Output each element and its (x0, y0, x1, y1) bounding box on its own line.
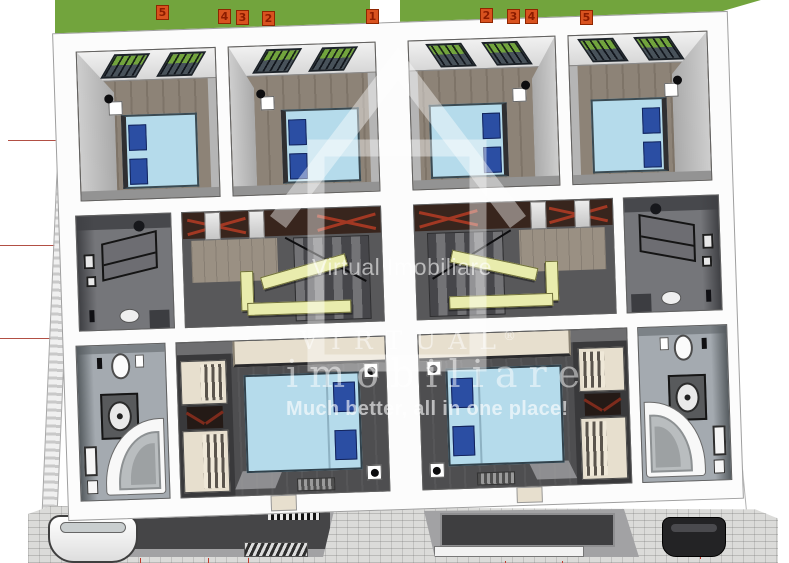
king-bed (244, 371, 363, 473)
radiator (89, 310, 94, 322)
white-car (48, 515, 138, 563)
double-bed (121, 113, 199, 189)
master-bedroom (175, 335, 390, 498)
lot-marker: 2 (262, 11, 275, 26)
stair-hall (413, 198, 617, 321)
wardrobe (580, 417, 628, 480)
wardrobe-slats (200, 364, 223, 401)
ceiling-lamp (133, 220, 144, 231)
towel-rack (87, 480, 98, 494)
stair-railing (449, 293, 553, 309)
bathtub-basin (130, 443, 156, 485)
lot-marker: 3 (236, 10, 249, 25)
side-wall (410, 71, 422, 189)
terrace-canopy (440, 513, 615, 547)
pillow (451, 378, 474, 409)
king-bed (445, 365, 564, 467)
nightstand (367, 465, 382, 480)
chair (119, 309, 139, 324)
bedside-lamp (433, 467, 441, 475)
wardrobe-slats (202, 434, 226, 489)
entrance-terrace-right (424, 509, 639, 557)
towel-rack (714, 459, 725, 473)
toilet (111, 353, 131, 380)
side-wall (368, 73, 380, 191)
entrance-porch (271, 494, 298, 511)
towel-rack (712, 425, 726, 455)
entry-steps (244, 542, 308, 557)
wardrobe-slats (584, 421, 608, 476)
nightstand (512, 88, 526, 102)
master-bedroom (417, 327, 632, 490)
doormat (297, 477, 335, 491)
wardrobe-column (177, 354, 236, 499)
ceiling-joist (574, 200, 591, 229)
bathroom (637, 324, 732, 483)
drain (117, 413, 123, 419)
wardrobe-column (573, 340, 632, 486)
wall-picture (86, 276, 96, 287)
stair-hall (181, 206, 385, 329)
side-wall (569, 66, 581, 184)
bathroom (75, 343, 170, 502)
desk-frame (638, 214, 696, 262)
doorway (631, 294, 652, 313)
double-bed (591, 97, 669, 173)
radiator (706, 290, 711, 302)
toilet (673, 334, 693, 361)
bedroom-outer (567, 31, 712, 186)
entry-step (434, 546, 584, 557)
bathtub-basin (654, 426, 680, 468)
nightstand (260, 96, 274, 110)
nightstand (430, 463, 445, 478)
pillow (482, 113, 501, 140)
wall-fixture (702, 338, 707, 349)
stair-landing (519, 227, 606, 272)
dressing-room (623, 194, 723, 313)
entrance-porch (516, 486, 543, 503)
wardrobe (578, 347, 625, 393)
bedroom-inner (228, 42, 381, 197)
wall-picture (702, 256, 712, 267)
flush-button (135, 354, 144, 367)
wardrobe (182, 430, 230, 493)
lot-marker: 5 (156, 5, 169, 20)
nightstand (664, 83, 678, 97)
pillow (642, 107, 661, 134)
wardrobe-slats (582, 351, 605, 388)
lot-marker: 4 (218, 9, 231, 24)
pillow (129, 158, 148, 185)
doormat (477, 471, 515, 485)
pillow (334, 429, 357, 460)
shelf-niche (187, 406, 224, 429)
double-bed (281, 107, 361, 184)
bathtub-rim (649, 413, 693, 472)
nightstand (363, 363, 378, 378)
nightstand (426, 361, 441, 376)
drain (684, 394, 690, 400)
pillow (333, 381, 356, 412)
lot-marker: 3 (507, 9, 520, 24)
desk-frame (101, 230, 158, 282)
nightstand (108, 101, 122, 115)
rug (235, 470, 282, 490)
pillow (289, 153, 308, 180)
lot-marker: 2 (480, 8, 493, 23)
lot-marker: 5 (580, 10, 593, 25)
lot-marker: 4 (525, 9, 538, 24)
sink (675, 382, 700, 413)
ceiling-joist (204, 212, 221, 241)
towel-rack (84, 446, 98, 476)
double-bed (429, 102, 509, 179)
side-wall (208, 78, 220, 196)
ceiling-joist (530, 201, 547, 230)
building-floorplan (52, 11, 744, 521)
pillow (483, 147, 502, 174)
dressing-room (75, 212, 175, 331)
wall-fixture (97, 358, 102, 369)
bedside-lamp (429, 365, 437, 373)
floorplan-render: 5 4 3 2 1 2 3 4 5 (0, 0, 789, 563)
lot-marker: 1 (366, 9, 379, 24)
chair (661, 291, 681, 306)
sink (107, 401, 132, 432)
wall-picture (702, 234, 713, 249)
flush-button (660, 337, 669, 350)
bathtub-rim (117, 431, 161, 490)
pillow (452, 426, 475, 457)
doorway (149, 310, 170, 329)
wall-picture (83, 254, 94, 269)
ceiling-joist (248, 210, 265, 239)
unit-right (399, 24, 732, 496)
bedroom-inner (408, 36, 561, 191)
truss-brace (418, 204, 479, 230)
shelf-niche (584, 393, 621, 416)
bedroom-outer (76, 47, 221, 202)
ceiling-lamp (650, 203, 661, 214)
pillow (128, 124, 147, 151)
bedside-lamp (367, 367, 375, 375)
truss-brace (316, 208, 377, 234)
wardrobe (180, 360, 227, 406)
bedside-lamp (521, 81, 530, 90)
unit-left (66, 35, 399, 507)
pillow (643, 141, 662, 168)
pillow (288, 119, 307, 146)
bedside-lamp (371, 469, 379, 477)
dark-car (662, 517, 726, 557)
headboard-wardrobe (418, 330, 571, 361)
